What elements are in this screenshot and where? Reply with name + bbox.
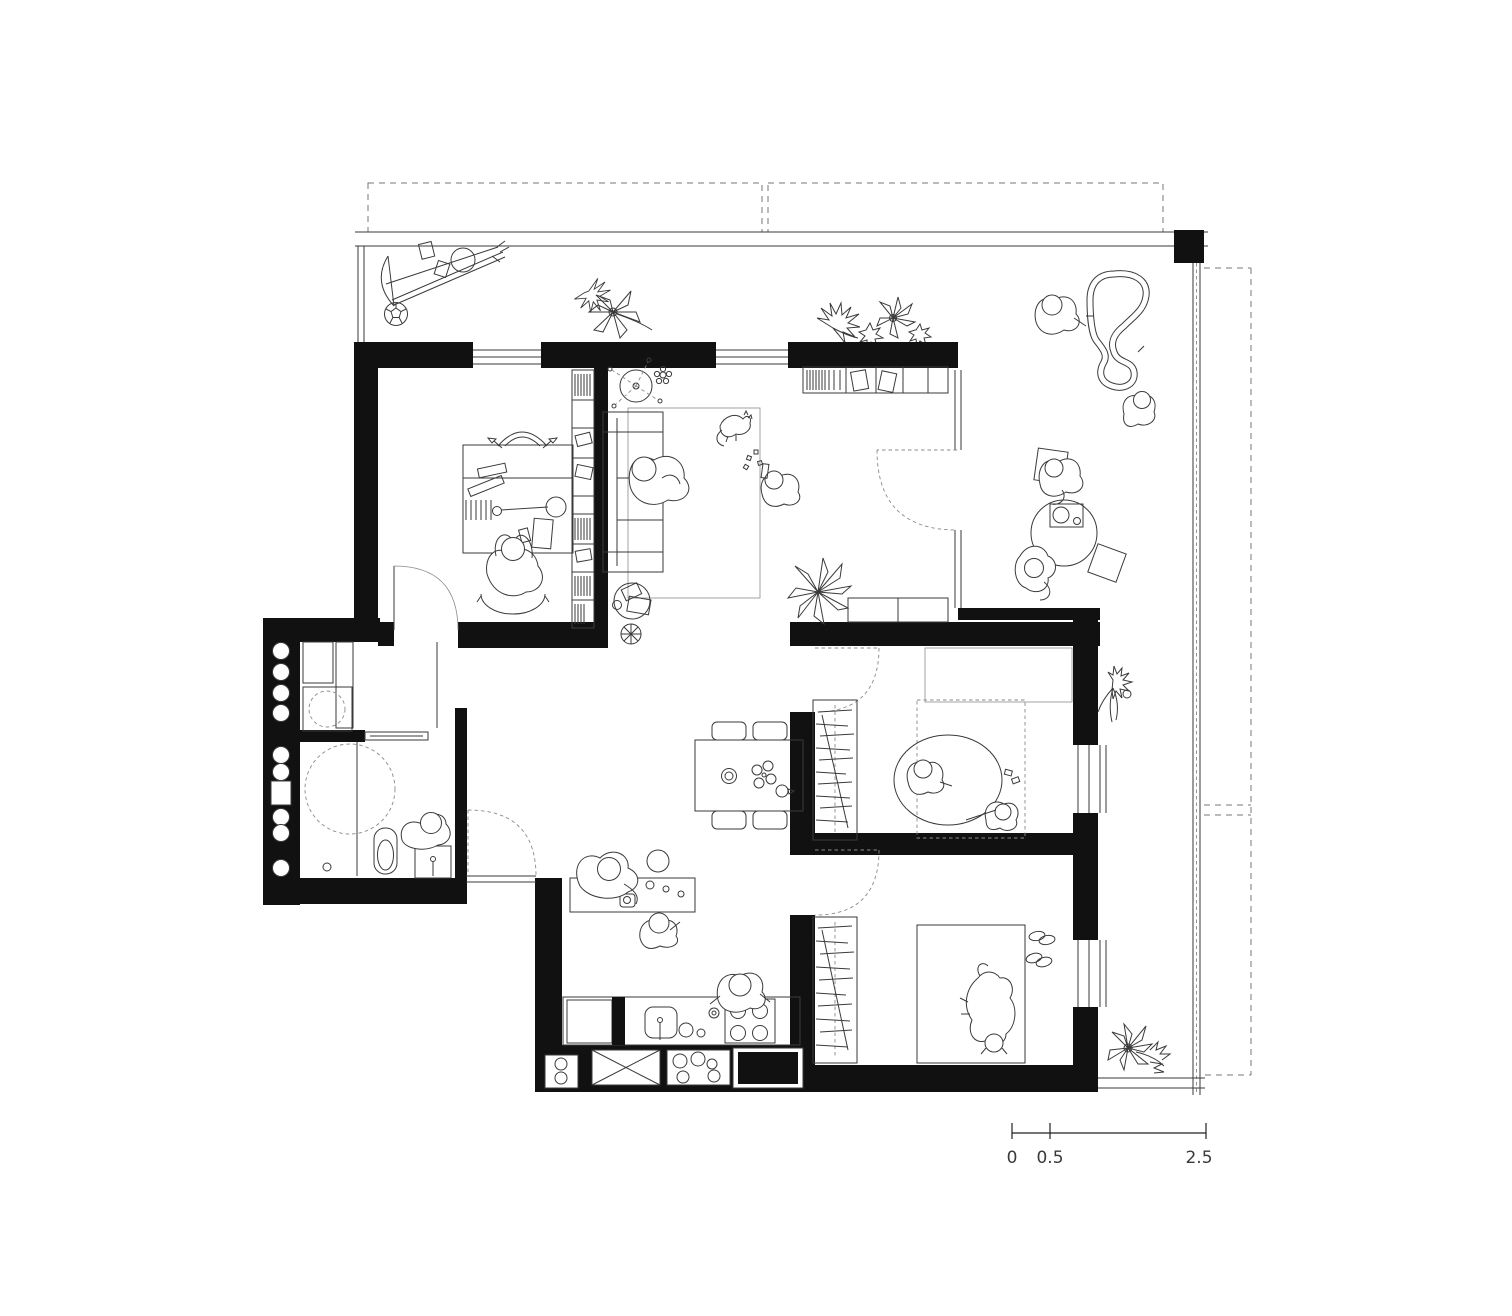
wall-office-west (354, 342, 378, 642)
appliance-box-solid (733, 1048, 803, 1088)
wall-between-bedrooms (790, 833, 1073, 855)
wall-office-door-stub (378, 622, 394, 646)
wall-bed1-north (790, 622, 1100, 646)
floor-plan-drawing: 0 0.5 2.5 (0, 0, 1512, 1316)
sofa-person (629, 456, 689, 504)
wall-north-c (788, 342, 958, 368)
wall-bath-south (263, 878, 467, 904)
counter-divider (612, 997, 625, 1045)
background (0, 0, 1512, 1316)
scale-label-25: 2.5 (1185, 1148, 1212, 1168)
appliance-box-crossed (592, 1050, 660, 1085)
wall-bed-east-a (1073, 608, 1098, 745)
wall-office-south-right (458, 622, 608, 648)
scale-label-05: 0.5 (1036, 1148, 1063, 1168)
floor-plan-page: 0 0.5 2.5 (0, 0, 1512, 1316)
wall-office-living-divider (594, 368, 608, 648)
appliance-box-small (545, 1055, 578, 1088)
wall-bed-south (790, 1065, 1098, 1092)
wall-bath-east (455, 708, 467, 880)
scale-label-0: 0 (1007, 1148, 1018, 1168)
wall-laundry-divider (300, 730, 365, 742)
wall-north-b (541, 342, 716, 368)
floor-lamp (621, 624, 641, 644)
wall-office-south-left (263, 618, 380, 642)
appliance-box-burners (667, 1050, 730, 1085)
wall-bed-west-b (790, 915, 815, 1065)
column (1174, 230, 1204, 263)
wall-bed-east-b (1073, 813, 1098, 940)
